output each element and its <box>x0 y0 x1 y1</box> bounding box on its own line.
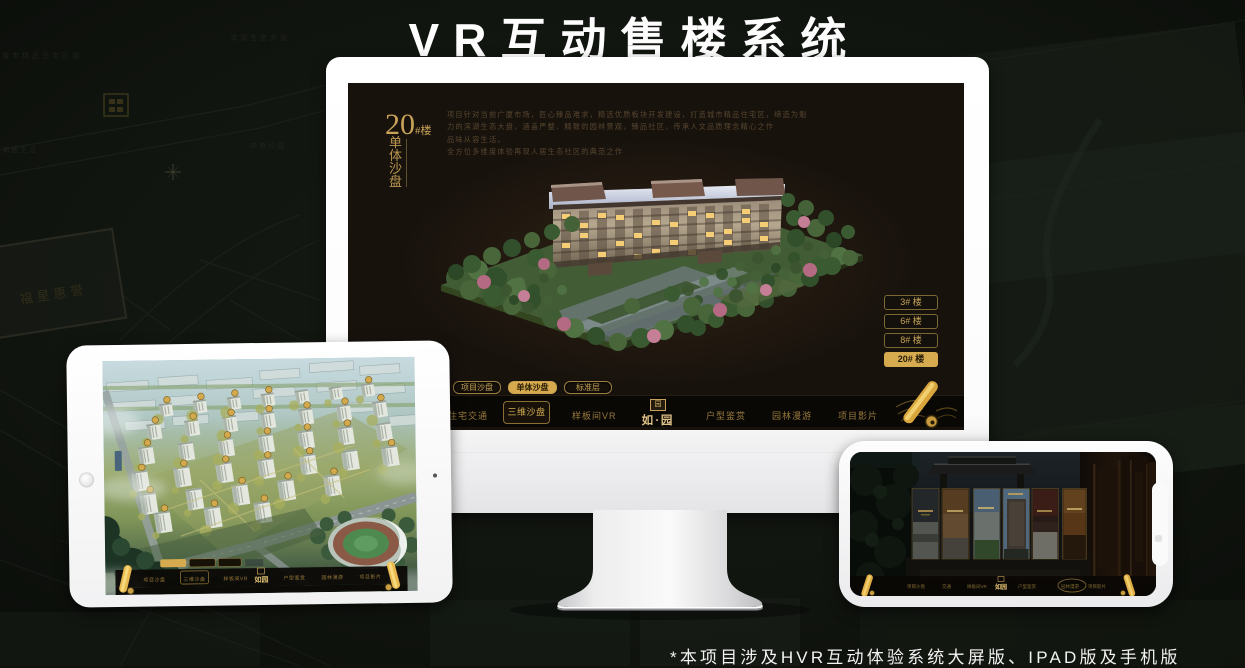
svg-text:项目沙盘: 项目沙盘 <box>907 583 925 590</box>
svg-text:湖居生活: 湖居生活 <box>2 145 38 154</box>
svg-text:项目影片: 项目影片 <box>1088 583 1106 590</box>
svg-text:户型鉴赏: 户型鉴赏 <box>1018 583 1036 590</box>
svg-text:三维沙盘: 三维沙盘 <box>183 576 205 583</box>
svg-text:项目影片: 项目影片 <box>359 573 381 580</box>
svg-text:样板间VR: 样板间VR <box>223 575 248 582</box>
svg-text:如园: 如园 <box>995 583 1007 591</box>
svg-text:样板间VR: 样板间VR <box>967 583 988 590</box>
svg-text:园林漫游: 园林漫游 <box>1061 583 1079 590</box>
svg-text:中央公园: 中央公园 <box>250 141 286 150</box>
svg-text:如园: 如园 <box>254 575 268 584</box>
svg-text:园林漫游: 园林漫游 <box>321 574 343 581</box>
svg-text:户型鉴赏: 户型鉴赏 <box>283 574 305 581</box>
svg-text:交通: 交通 <box>942 583 951 590</box>
svg-text:项目沙盘: 项目沙盘 <box>143 576 165 583</box>
